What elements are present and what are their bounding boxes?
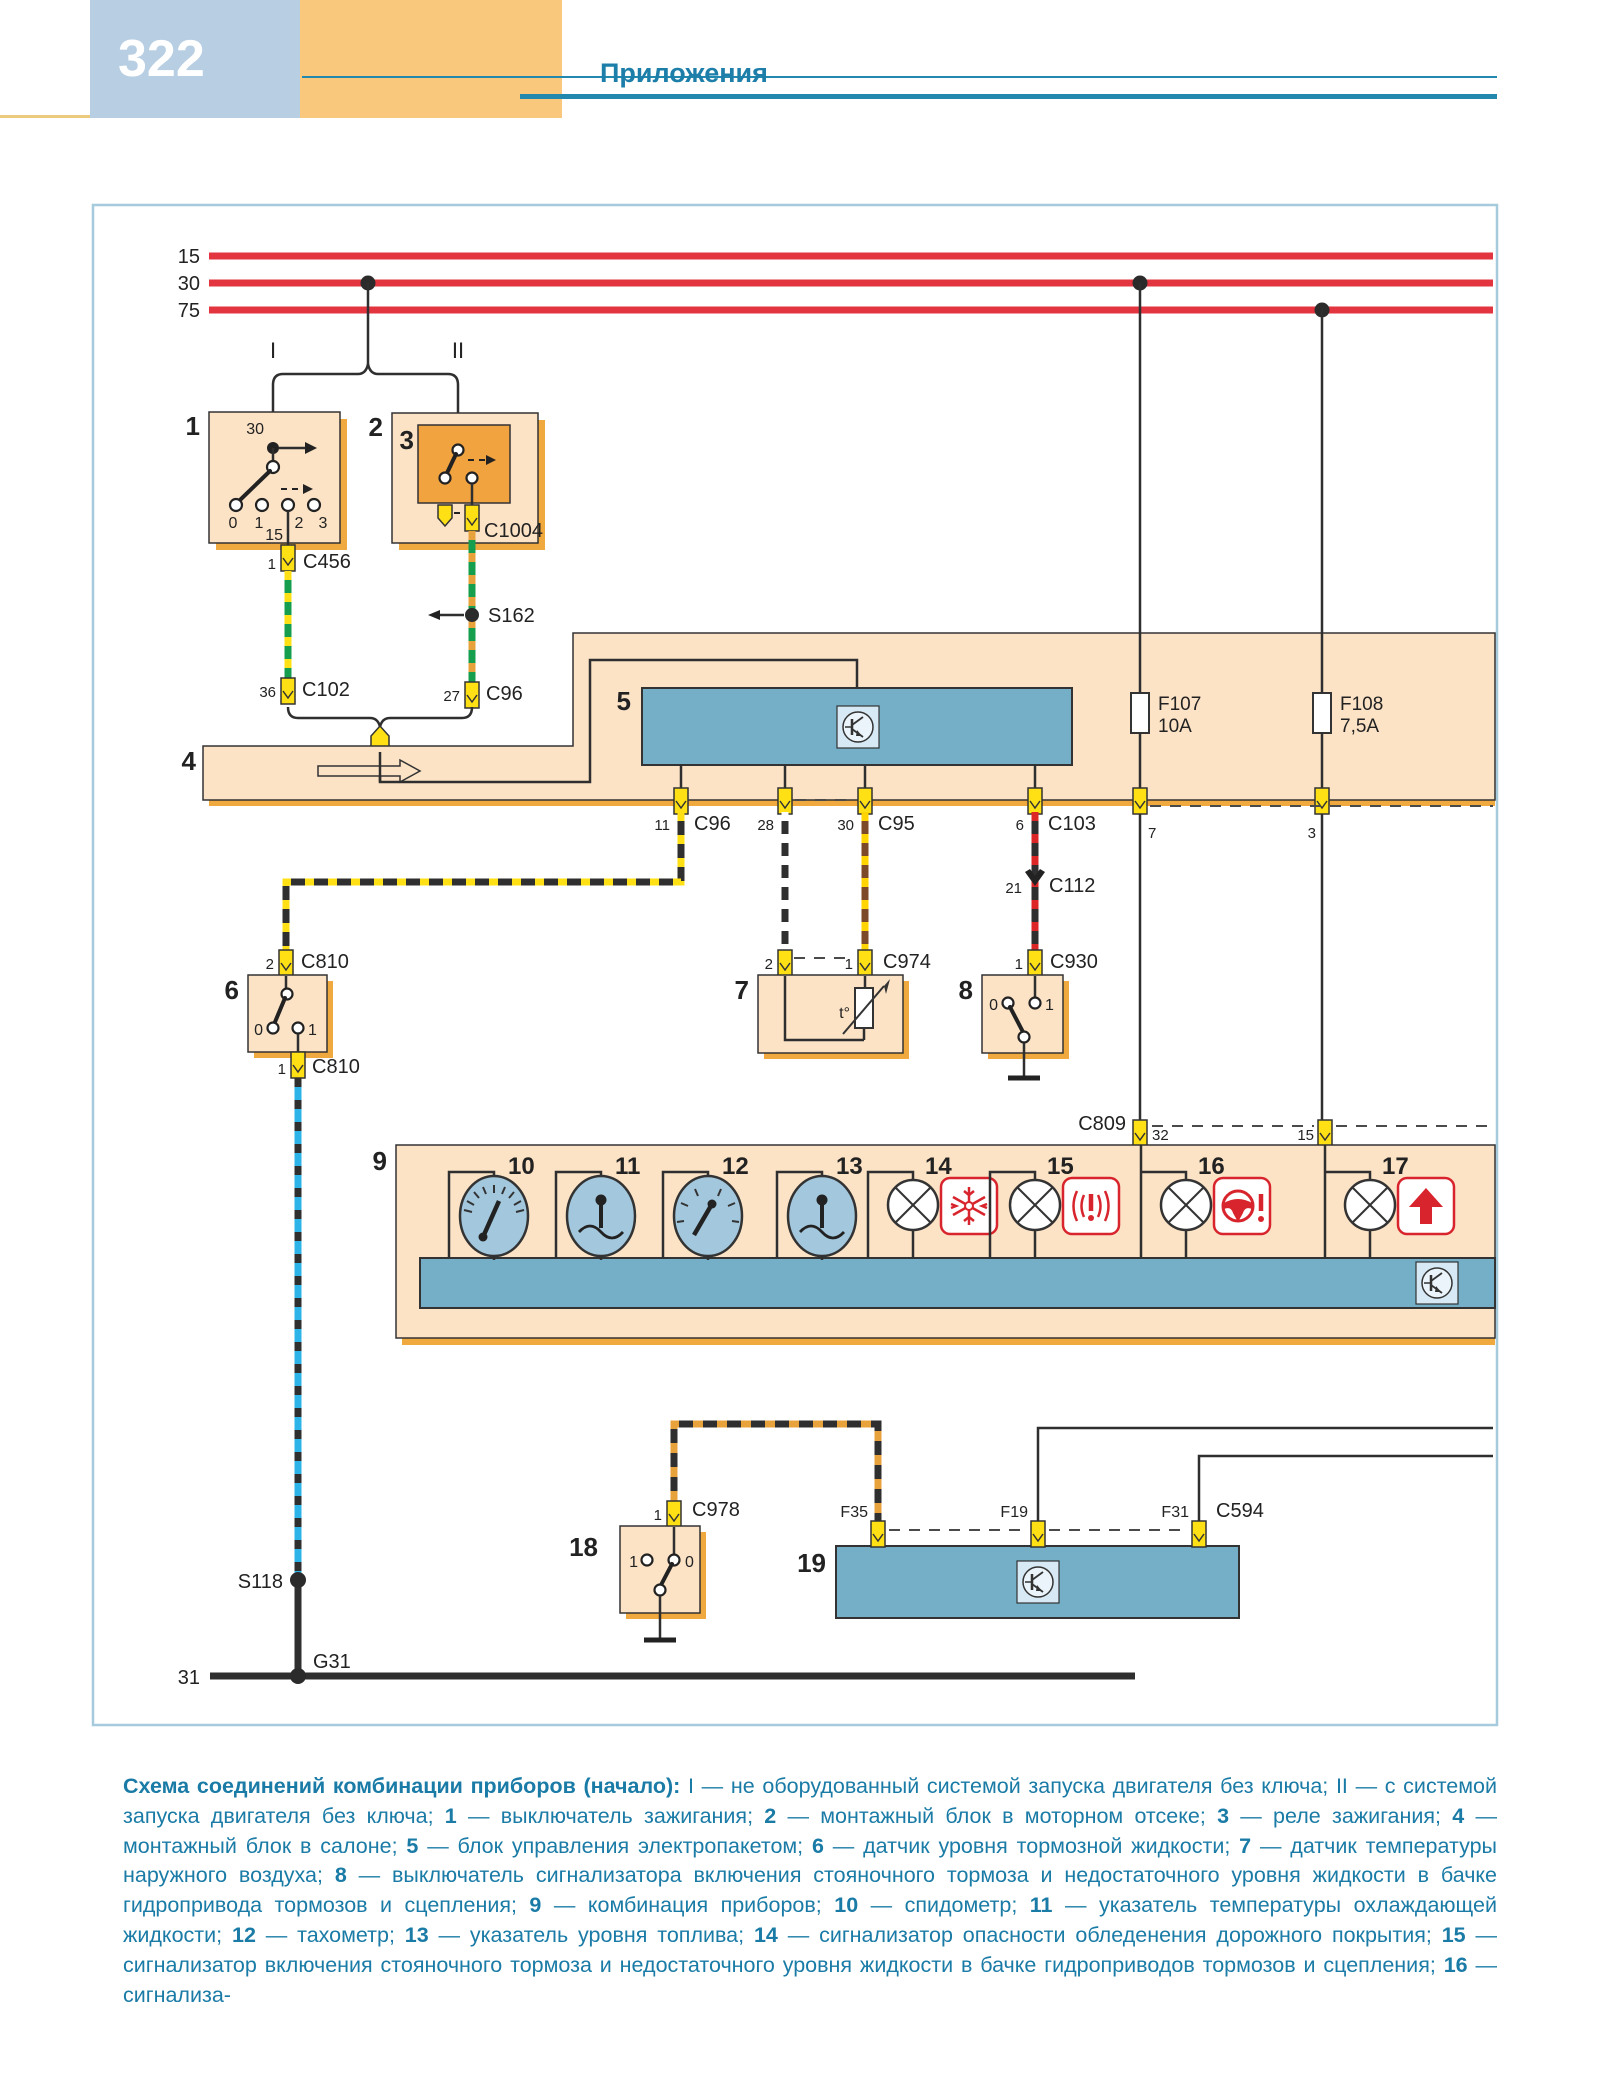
component-2-engine-bay-block: 2 3 C1004: [369, 412, 545, 550]
c103-pin: 6: [1016, 817, 1024, 834]
c112-pin: 21: [1005, 880, 1022, 897]
c974-label: C974: [883, 951, 931, 973]
component-10-number: 10: [508, 1153, 535, 1180]
steering-wheel-icon: [1214, 1178, 1270, 1234]
sw1-pos-1: 1: [255, 515, 264, 532]
g31-label: G31: [313, 1651, 351, 1673]
up-arrow-icon: [1398, 1178, 1454, 1234]
component-11-number: 11: [615, 1153, 640, 1180]
band-pin-7: 7: [1148, 825, 1156, 842]
transistor-icon: [837, 706, 879, 748]
band-pin-3: 3: [1308, 825, 1316, 842]
component-8-number: 8: [959, 975, 973, 1005]
lamp-icon: [1161, 1180, 1211, 1230]
component-3-number: 3: [400, 425, 414, 455]
component-9-instrument-cluster: 9 10 11: [373, 1145, 1495, 1345]
component-14-number: 14: [925, 1153, 952, 1180]
c1004-label: C1004: [484, 520, 543, 542]
c810-top-pin: 2: [266, 956, 274, 973]
c978-pin: 1: [654, 1507, 662, 1524]
c809-label: C809: [1078, 1113, 1126, 1135]
bus-label-15: 15: [178, 246, 200, 268]
component-16-number: 16: [1198, 1153, 1225, 1180]
c456-pin: 1: [268, 556, 276, 573]
component-19-number: 19: [797, 1548, 826, 1578]
component-1-ignition-switch: 1 30 0 1 2 3 15: [186, 411, 347, 550]
wiring-diagram: 15 30 75 I II 1 30 0 1 2 3 15: [0, 0, 1614, 1770]
bus-label-30: 30: [178, 273, 200, 295]
transistor-icon: [1017, 1561, 1059, 1603]
c96-pin: 11: [654, 817, 670, 834]
f35-label: F35: [840, 1504, 868, 1521]
c96-label: C96: [694, 813, 731, 835]
component-9-number: 9: [373, 1146, 387, 1176]
f108-rating: 7,5A: [1340, 716, 1379, 737]
sw6-pos-0: 0: [254, 1022, 263, 1039]
sw1-pos-0: 0: [229, 515, 238, 532]
c974-pin-1: 1: [845, 956, 853, 973]
f31-label: F31: [1161, 1504, 1189, 1521]
f19-label: F19: [1000, 1504, 1028, 1521]
fuse-icon: [1313, 693, 1331, 733]
sw1-pos-2: 2: [295, 515, 304, 532]
f108-label: F108: [1340, 694, 1383, 715]
c102-label: C102: [302, 679, 350, 701]
c810-top-label: C810: [301, 951, 349, 973]
c102-pin: 36: [259, 684, 276, 701]
c456-label: C456: [303, 551, 351, 573]
component-17-number: 17: [1382, 1153, 1409, 1180]
component-5-number: 5: [617, 686, 631, 716]
f107-rating: 10A: [1158, 716, 1192, 737]
sw18-pos-0: 0: [685, 1554, 694, 1571]
c930-pin: 1: [1015, 956, 1023, 973]
pin-15-label: 15: [265, 527, 283, 544]
c594-label: C594: [1216, 1500, 1264, 1522]
gnd-31-label: 31: [178, 1667, 200, 1689]
sw18-pos-1: 1: [629, 1554, 638, 1571]
c96-top-pin: 27: [443, 688, 460, 705]
component-12-number: 12: [722, 1153, 749, 1180]
sw8-pos-1: 1: [1045, 997, 1054, 1014]
component-7-number: 7: [735, 975, 749, 1005]
pin-28-label: 28: [757, 817, 774, 834]
s118-label: S118: [238, 1571, 283, 1593]
c809-pin-15: 15: [1297, 1127, 1314, 1144]
brake-warning-icon: [1063, 1178, 1119, 1234]
caption-text: Схема соединений комбинации приборов (на…: [123, 1772, 1497, 2010]
c978-label: C978: [692, 1499, 740, 1521]
s162-label: S162: [488, 605, 535, 627]
component-15-number: 15: [1047, 1153, 1074, 1180]
component-18-number: 18: [569, 1532, 598, 1562]
c974-pin-2: 2: [765, 956, 773, 973]
bus-label-75: 75: [178, 300, 200, 322]
c95-pin: 30: [837, 817, 854, 834]
lamp-icon: [888, 1180, 938, 1230]
branch-label-ii: II: [452, 338, 464, 363]
c103-label: C103: [1048, 813, 1096, 835]
sw6-pos-1: 1: [308, 1022, 317, 1039]
fuse-icon: [1131, 693, 1149, 733]
c95-label: C95: [878, 813, 915, 835]
c810-bottom-pin: 1: [278, 1061, 286, 1078]
sw8-pos-0: 0: [989, 997, 998, 1014]
snowflake-icon: [941, 1178, 997, 1234]
c96-top-label: C96: [486, 683, 523, 705]
lamp-icon: [1010, 1180, 1060, 1230]
temperature-symbol: t°: [839, 1005, 850, 1022]
power-bus: 15 30 75: [178, 246, 1493, 322]
c930-label: C930: [1050, 951, 1098, 973]
c810-bottom-label: C810: [312, 1056, 360, 1078]
lamp-icon: [1345, 1180, 1395, 1230]
component-13-number: 13: [836, 1153, 863, 1180]
component-2-number: 2: [369, 412, 383, 442]
sw1-pos-3: 3: [319, 515, 328, 532]
f107-label: F107: [1158, 694, 1201, 715]
c809-pin-32: 32: [1152, 1127, 1169, 1144]
transistor-icon: [1416, 1262, 1458, 1304]
component-4-number: 4: [182, 746, 197, 776]
branch-label-i: I: [270, 338, 276, 363]
component-6-number: 6: [225, 975, 239, 1005]
cluster-bus-bar: [420, 1258, 1495, 1308]
c112-label: C112: [1049, 875, 1095, 897]
component-1-number: 1: [186, 411, 200, 441]
pin-30-label: 30: [246, 421, 264, 438]
